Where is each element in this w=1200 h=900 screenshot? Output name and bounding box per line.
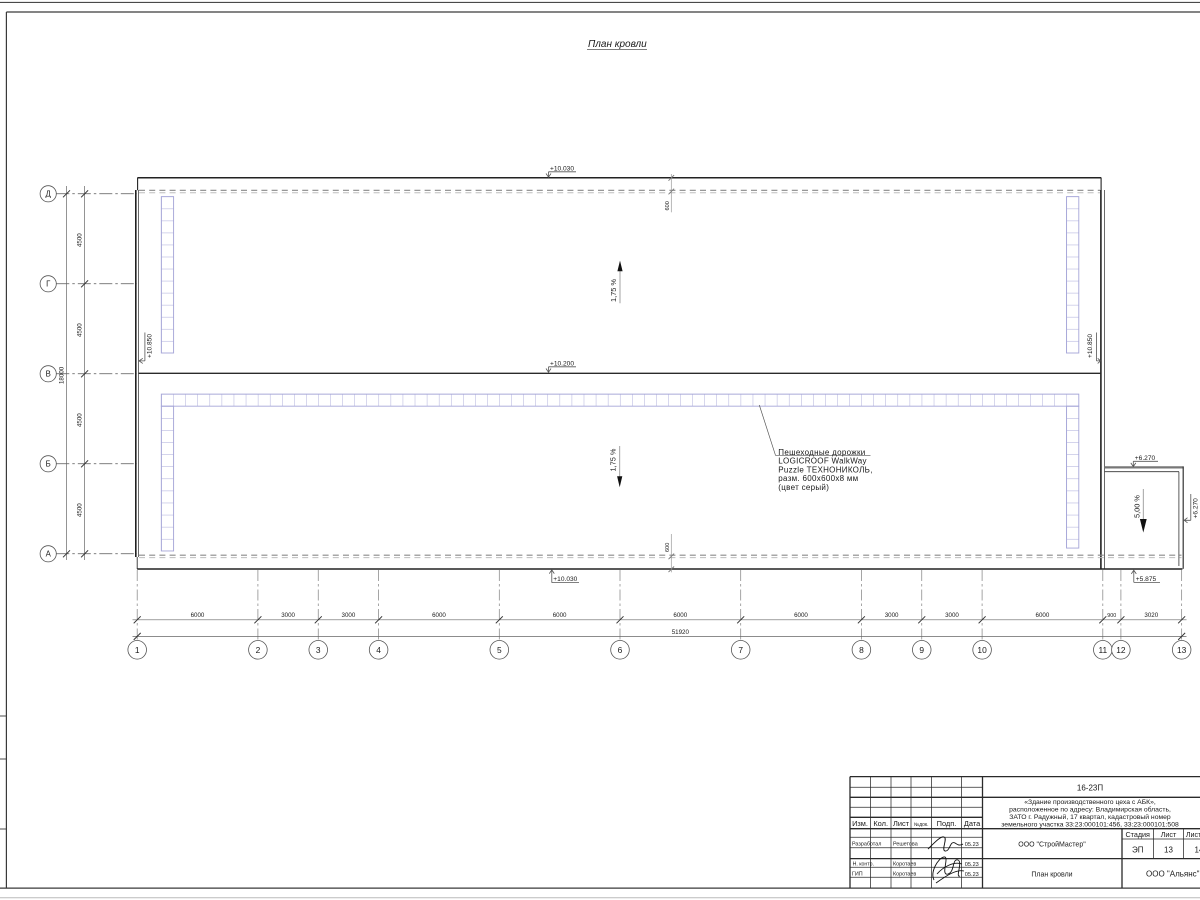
svg-text:План кровли: План кровли (588, 39, 647, 50)
svg-text:ГИП: ГИП (852, 872, 863, 878)
svg-text:9: 9 (919, 645, 924, 655)
svg-text:Puzzle ТЕХНОНИКОЛЬ,: Puzzle ТЕХНОНИКОЛЬ, (778, 465, 872, 474)
svg-text:4500: 4500 (77, 233, 84, 247)
svg-text:Д: Д (46, 190, 52, 199)
svg-text:6000: 6000 (794, 612, 808, 619)
svg-text:Разработал: Разработал (852, 841, 881, 847)
svg-text:6: 6 (618, 645, 623, 655)
svg-text:900: 900 (1107, 613, 1116, 619)
svg-text:4500: 4500 (77, 413, 84, 427)
svg-text:5,00 %: 5,00 % (1132, 495, 1141, 518)
svg-text:7: 7 (738, 645, 743, 655)
svg-text:+10.200: +10.200 (550, 360, 574, 367)
svg-text:4: 4 (376, 645, 381, 655)
svg-text:+10.030: +10.030 (550, 165, 574, 172)
svg-text:LOGICROOF WalkWay: LOGICROOF WalkWay (778, 457, 867, 466)
svg-text:расположенное по адресу: Влади: расположенное по адресу: Владимирская об… (1009, 806, 1171, 814)
svg-text:18000: 18000 (59, 366, 66, 384)
svg-text:1,75 %: 1,75 % (609, 279, 618, 302)
svg-text:05.23: 05.23 (965, 842, 979, 848)
svg-text:600: 600 (665, 201, 671, 210)
svg-text:ООО "Альянс": ООО "Альянс" (1146, 870, 1200, 879)
svg-text:№док.: №док. (914, 822, 929, 828)
svg-text:8: 8 (859, 645, 864, 655)
svg-text:План кровли: План кровли (1031, 872, 1072, 879)
svg-text:Подп.: Подп. (937, 819, 957, 828)
svg-text:+6.270: +6.270 (1135, 455, 1156, 462)
svg-text:2: 2 (256, 645, 261, 655)
svg-text:4500: 4500 (77, 503, 84, 517)
svg-text:Листов: Листов (1186, 830, 1200, 839)
svg-text:1,75 %: 1,75 % (609, 448, 618, 471)
svg-text:1: 1 (135, 645, 140, 655)
svg-text:+5.875: +5.875 (1136, 576, 1157, 583)
svg-text:А: А (46, 550, 52, 559)
svg-text:3000: 3000 (945, 612, 959, 619)
svg-text:Изм.: Изм. (852, 819, 868, 828)
svg-text:6000: 6000 (191, 612, 205, 619)
svg-text:ЭП: ЭП (1132, 846, 1144, 855)
svg-text:В: В (46, 370, 51, 379)
svg-text:4500: 4500 (77, 323, 84, 337)
svg-text:ЗАТО г. Радужный, 17 квартал,: ЗАТО г. Радужный, 17 квартал, кадастровы… (1009, 813, 1171, 821)
svg-text:Кол.: Кол. (873, 819, 888, 828)
svg-text:+10.030: +10.030 (553, 576, 577, 583)
svg-text:+6.270: +6.270 (1192, 498, 1199, 519)
svg-text:3000: 3000 (885, 612, 899, 619)
svg-text:5: 5 (497, 645, 502, 655)
svg-text:13: 13 (1164, 846, 1173, 855)
svg-text:10: 10 (977, 645, 987, 655)
svg-text:12: 12 (1116, 645, 1126, 655)
svg-text:«Здание производственного цеха: «Здание производственного цеха с АБК», (1024, 799, 1156, 806)
svg-text:Лист: Лист (1161, 830, 1177, 839)
svg-text:Пешеходные дорожки: Пешеходные дорожки (778, 448, 865, 457)
svg-text:05.23: 05.23 (965, 862, 979, 868)
svg-text:51920: 51920 (672, 629, 690, 636)
svg-text:Н. контр.: Н. контр. (853, 862, 874, 868)
svg-text:6000: 6000 (432, 612, 446, 619)
svg-text:6000: 6000 (673, 612, 687, 619)
svg-text:Лист: Лист (893, 819, 910, 828)
svg-text:+10.850: +10.850 (1087, 334, 1094, 358)
svg-text:14: 14 (1195, 846, 1200, 855)
svg-text:Коротаев: Коротаев (893, 862, 916, 868)
svg-text:Стадия: Стадия (1125, 830, 1150, 839)
svg-text:13: 13 (1177, 645, 1187, 655)
svg-text:земельного участка 33:23:00010: земельного участка 33:23:000101:456, 33:… (1001, 822, 1179, 829)
svg-text:разм. 600х600х8 мм: разм. 600х600х8 мм (778, 474, 858, 483)
svg-text:Б: Б (46, 460, 51, 469)
svg-text:(цвет серый): (цвет серый) (778, 483, 829, 492)
svg-text:11: 11 (1098, 645, 1107, 655)
svg-text:3000: 3000 (281, 612, 295, 619)
svg-text:6000: 6000 (553, 612, 567, 619)
svg-text:05.23: 05.23 (965, 872, 979, 878)
svg-text:6000: 6000 (1036, 612, 1050, 619)
svg-text:Решетова: Решетова (893, 841, 918, 847)
svg-text:Дата: Дата (964, 819, 981, 828)
svg-text:3020: 3020 (1144, 612, 1158, 619)
svg-text:16-23П: 16-23П (1077, 784, 1103, 793)
svg-text:ООО "СтройМастер": ООО "СтройМастер" (1018, 841, 1086, 849)
svg-text:3000: 3000 (342, 612, 356, 619)
svg-text:600: 600 (665, 543, 671, 552)
svg-text:+10.850: +10.850 (147, 334, 154, 358)
svg-text:3: 3 (316, 645, 321, 655)
svg-text:Коротаев: Коротаев (893, 872, 916, 878)
